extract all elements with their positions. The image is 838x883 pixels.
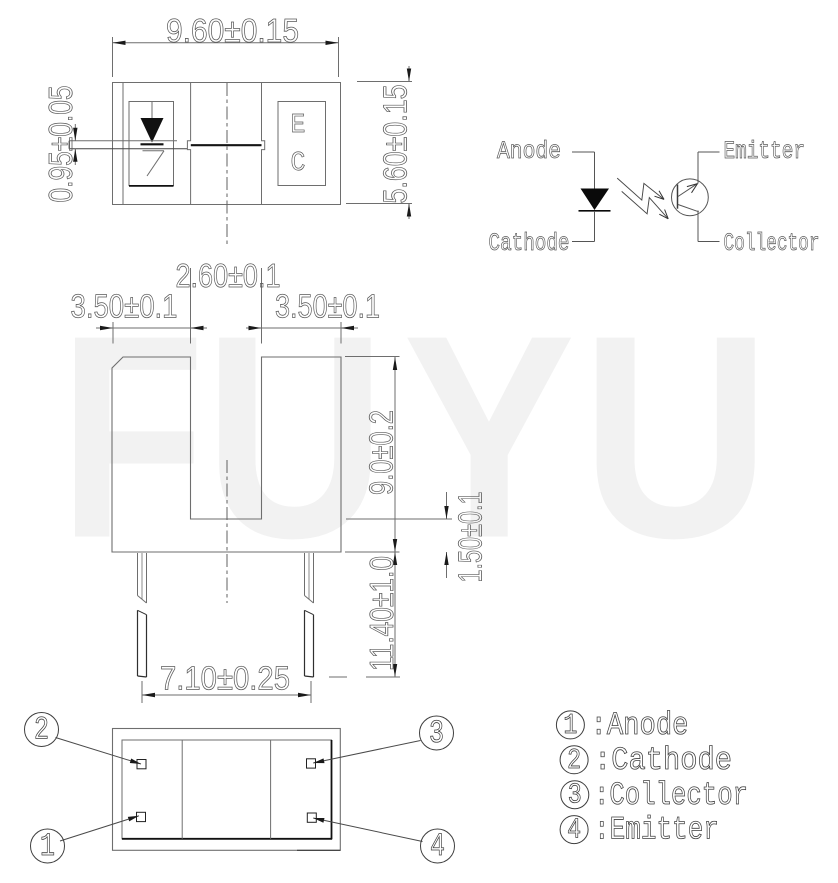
- svg-text:2.60±0.1: 2.60±0.1: [176, 257, 281, 294]
- svg-text:Emitter: Emitter: [724, 137, 806, 166]
- svg-text:9.0±0.2: 9.0±0.2: [363, 410, 400, 495]
- svg-text:Collector: Collector: [724, 229, 820, 258]
- svg-text:3: 3: [568, 779, 582, 812]
- svg-text:5.60±0.15: 5.60±0.15: [377, 85, 414, 204]
- svg-text:0.95±0.05: 0.95±0.05: [42, 86, 79, 203]
- svg-text:4: 4: [430, 828, 445, 865]
- svg-text::Emitter: :Emitter: [594, 812, 719, 849]
- svg-text::Cathode: :Cathode: [594, 742, 732, 779]
- svg-text:1.50±0.1: 1.50±0.1: [452, 492, 489, 583]
- svg-text:3.50±0.1: 3.50±0.1: [71, 288, 178, 325]
- svg-text:1: 1: [40, 828, 55, 865]
- svg-text:4: 4: [567, 814, 581, 847]
- svg-text::Collector: :Collector: [594, 777, 748, 814]
- svg-text::Anode: :Anode: [591, 707, 689, 744]
- svg-text:U: U: [581, 276, 771, 599]
- svg-text:1: 1: [563, 709, 577, 742]
- svg-text:9.60±0.15: 9.60±0.15: [166, 12, 299, 49]
- svg-text:7.10±0.25: 7.10±0.25: [160, 660, 290, 697]
- svg-text:Y: Y: [403, 276, 576, 599]
- svg-text:2: 2: [34, 712, 49, 749]
- svg-text:E: E: [291, 110, 306, 140]
- svg-text:2: 2: [567, 744, 581, 777]
- svg-text:Cathode: Cathode: [489, 229, 570, 258]
- svg-text:Anode: Anode: [497, 137, 561, 166]
- svg-text:3.50±0.1: 3.50±0.1: [275, 288, 380, 325]
- svg-text:C: C: [291, 148, 306, 178]
- svg-text:11.40±1.0: 11.40±1.0: [363, 556, 400, 671]
- svg-text:3: 3: [429, 715, 444, 752]
